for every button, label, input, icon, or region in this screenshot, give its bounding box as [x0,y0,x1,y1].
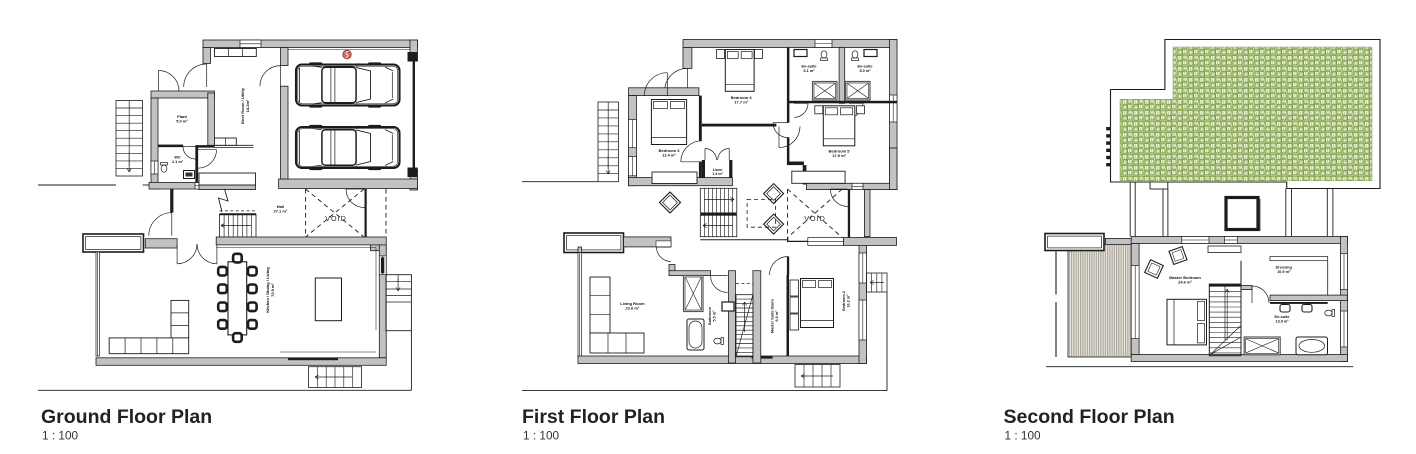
svg-text:6.0 m²: 6.0 m² [775,310,779,322]
svg-text:14.2m²: 14.2m² [245,99,250,112]
svg-text:En-suite: En-suite [858,65,873,69]
svg-text:24.6 m²: 24.6 m² [1178,280,1192,285]
svg-text:13.9 m²: 13.9 m² [1275,319,1289,323]
svg-text:16.2 m²: 16.2 m² [847,294,851,308]
svg-text:1 : 100: 1 : 100 [42,429,79,443]
svg-text:First Floor Plan: First Floor Plan [522,406,665,428]
svg-text:1.4 m²: 1.4 m² [712,172,723,176]
svg-text:VOID: VOID [804,214,826,223]
svg-text:WC: WC [174,156,181,160]
svg-text:17.9 m²: 17.9 m² [832,153,846,158]
svg-text:6.1 m²: 6.1 m² [804,69,816,73]
svg-text:VOID: VOID [325,214,347,223]
svg-text:22.6 m²: 22.6 m² [626,306,640,311]
svg-text:Bedroom 2: Bedroom 2 [842,291,846,311]
svg-text:2.1 m²: 2.1 m² [172,160,184,164]
svg-text:11.4 m²: 11.4 m² [662,153,676,158]
svg-text:5.5 m²: 5.5 m² [713,310,717,322]
svg-text:Dressing: Dressing [1276,266,1293,270]
svg-text:Bathroom: Bathroom [708,306,712,325]
svg-text:72.9 m²: 72.9 m² [270,282,275,296]
svg-text:Ground Floor Plan: Ground Floor Plan [41,406,212,428]
svg-text:Second Floor Plan: Second Floor Plan [1004,406,1175,428]
svg-text:5.0 m²: 5.0 m² [860,69,872,73]
svg-text:En-suite: En-suite [1275,315,1290,319]
svg-text:En-suite: En-suite [802,65,817,69]
svg-text:Master Suite Stairs: Master Suite Stairs [771,299,775,333]
svg-text:1 : 100: 1 : 100 [523,429,560,443]
svg-text:1 : 100: 1 : 100 [1005,429,1042,443]
svg-text:5.0 m²: 5.0 m² [176,119,188,124]
svg-text:10.9 m²: 10.9 m² [1277,270,1291,274]
svg-text:27.1 m²: 27.1 m² [274,209,288,214]
svg-text:17.7 m²: 17.7 m² [734,100,748,105]
